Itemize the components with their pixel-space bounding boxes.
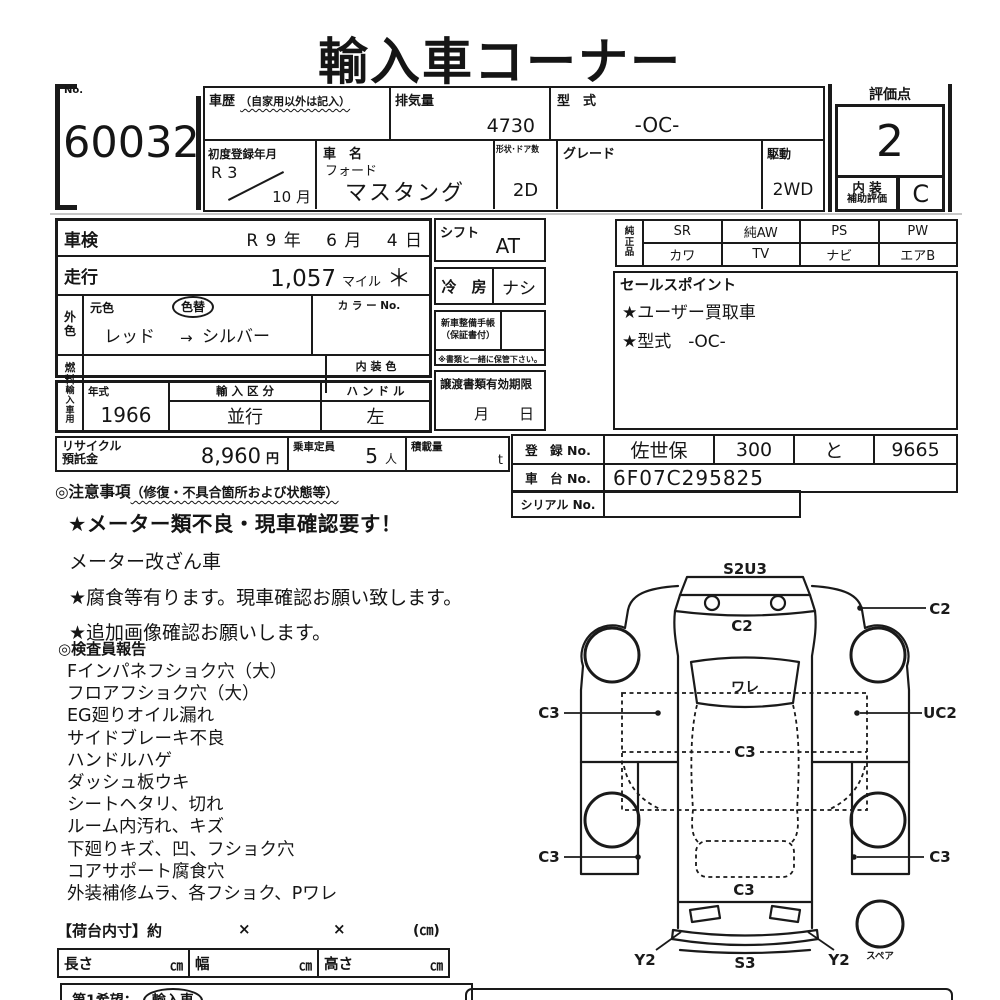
interior-rating-label-1: 内 装 bbox=[852, 182, 881, 195]
model-code-label: 型 式 bbox=[557, 94, 596, 109]
equipment-navi: ナビ bbox=[801, 244, 878, 265]
caution-line: ★腐食等有ります。現車確認お願い致します。 bbox=[55, 574, 515, 610]
diagram-label-c3-left-lower: C3 bbox=[538, 848, 559, 866]
registration-row: 登 録 No. 佐世保 300 と 9665 bbox=[511, 434, 958, 465]
inspector-heading: ◎検査員報告 bbox=[55, 638, 525, 659]
color-new-value: シルバー bbox=[202, 322, 270, 347]
diagram-label-s3: S3 bbox=[734, 954, 755, 972]
registration-no-label: 登 録 No. bbox=[513, 436, 603, 463]
shaken-value: R 9 年 6 月 4 日 bbox=[136, 226, 429, 251]
rating-score: 2 bbox=[835, 104, 945, 178]
equipment-sr: SR bbox=[644, 221, 721, 244]
import-class-label: 輸 入 区 分 bbox=[170, 383, 320, 402]
page-title: 輸入車コーナー bbox=[250, 22, 750, 94]
first-choice-value: 輸入車 bbox=[143, 988, 203, 1000]
shift-value: AT bbox=[496, 234, 520, 258]
cargo-height-label: 高さ bbox=[324, 953, 353, 974]
cargo-dims-table: 長さ ㎝ 幅 ㎝ 高さ ㎝ bbox=[57, 948, 450, 978]
cargo-cm-unit: (㎝) bbox=[413, 920, 440, 940]
mileage-asterisk-mark: ＊ bbox=[387, 258, 411, 293]
diagram-door-arc-right bbox=[828, 766, 865, 810]
equipment-pw: PW bbox=[880, 221, 957, 244]
cargo-height-cm: ㎝ bbox=[430, 955, 443, 974]
shift-label: シフト bbox=[440, 222, 479, 241]
inspector-item: フロアフショク穴（大） bbox=[67, 683, 525, 705]
diagram-pillar-left bbox=[691, 705, 698, 842]
cautions-section: ◎注意事項（修復・不具合箇所および状態等） ★メーター類不良・現車確認要す！ メ… bbox=[55, 480, 515, 645]
damage-diagram: S2U3 C2 ワレ C2 C3 UC2 C3 C3 C3 C3 Y2 S3 Y… bbox=[528, 548, 968, 978]
shift-box: シフト AT bbox=[434, 218, 546, 262]
displacement-value: 4730 bbox=[487, 115, 535, 137]
inspector-item: 下廻りキズ、凹、フショク穴 bbox=[67, 839, 525, 861]
sales-points-label: セールスポイント bbox=[615, 273, 956, 295]
capacity-label: 乗車定員 bbox=[293, 439, 335, 454]
cargo-x2: × bbox=[333, 920, 346, 938]
interior-rating-grade: C bbox=[897, 175, 946, 212]
diagram-leader-y2-left bbox=[656, 932, 681, 950]
inspector-item: ルーム内汚れ、キズ bbox=[67, 816, 525, 838]
equipment-ps: PS bbox=[801, 221, 878, 244]
diagram-headlight-left bbox=[705, 596, 719, 610]
model-year-label: 年式 bbox=[88, 384, 109, 399]
inspector-item: コアサポート腐食穴 bbox=[67, 861, 525, 883]
color-no-label: カ ラ ー No. bbox=[313, 298, 425, 313]
import-use-label: 輸入車用 bbox=[58, 383, 84, 430]
diagram-left-panel bbox=[581, 586, 678, 874]
recycle-row: リサイクル 預託金 8,960 円 乗車定員 5 人 積載量 t bbox=[55, 436, 510, 472]
inspector-item: シートヘタリ、切れ bbox=[67, 794, 525, 816]
diagram-wheel-front-left bbox=[585, 628, 639, 682]
ac-value: ナシ bbox=[494, 269, 544, 303]
diagram-body-right-edge bbox=[812, 611, 816, 928]
header-grid: 車歴 （自家用以外は記入） 排気量 4730 型 式 -OC- 初度登録年月 R… bbox=[203, 86, 825, 212]
recycle-label-2: 預託金 bbox=[62, 453, 121, 466]
exterior-color-label: 外色 bbox=[58, 296, 84, 354]
handle-value: 左 bbox=[322, 402, 429, 430]
sales-point-item: ★型式 -OC- bbox=[615, 323, 956, 352]
ac-label: 冷 房 bbox=[436, 269, 494, 303]
mileage-label: 走行 bbox=[58, 263, 136, 288]
diagram-spare-tire bbox=[857, 901, 903, 947]
model-year-value: 1966 bbox=[84, 403, 168, 427]
diagram-label-s2u3: S2U3 bbox=[723, 560, 767, 578]
interior-rating-label-2: 補助評価 bbox=[847, 195, 887, 205]
chassis-number: 6F07C295825 bbox=[603, 465, 956, 491]
diagram-label-c2-hood: C2 bbox=[731, 617, 752, 635]
diagram-label-y2-right: Y2 bbox=[827, 951, 849, 969]
diagram-wheel-front-right bbox=[851, 628, 905, 682]
load-unit: t bbox=[498, 453, 503, 468]
cargo-width-cm: ㎝ bbox=[299, 955, 312, 974]
first-reg-label: 初度登録年月 bbox=[208, 147, 277, 161]
diagram-label-c3-left-upper: C3 bbox=[538, 704, 559, 722]
inspector-item: 外装補修ムラ、各フショク、Pワレ bbox=[67, 883, 525, 905]
grade-label: グレード bbox=[563, 147, 615, 162]
doors-value: 2D bbox=[495, 180, 556, 201]
lot-number-block: No. 60032 bbox=[55, 84, 201, 210]
transfer-docs-value: 月 日 bbox=[474, 403, 534, 424]
inspector-item: サイドブレーキ不良 bbox=[67, 728, 525, 750]
diagram-headlight-right bbox=[771, 596, 785, 610]
registration-area: 佐世保 bbox=[603, 436, 713, 463]
service-book-label-2: （保証書付） bbox=[441, 331, 495, 342]
service-book-note: ※書類と一緒に保管下さい。 bbox=[436, 349, 544, 367]
diagram-wheel-rear-left bbox=[585, 793, 639, 847]
serial-no-label: シリアル No. bbox=[513, 492, 603, 516]
equipment-grid: 純正品 SR カワ 純AW TV PS ナビ PW エアB bbox=[615, 219, 958, 267]
diagram-taillight-left bbox=[690, 906, 720, 922]
diagram-label-y2-left: Y2 bbox=[633, 951, 655, 969]
mileage-unit: マイル bbox=[342, 271, 381, 290]
cargo-x1: × bbox=[238, 920, 251, 938]
vehicle-info-block: 車検 R 9 年 6 月 4 日 走行 1,057 マイル ＊ 外色 元色 色替… bbox=[55, 218, 432, 378]
sales-point-item: ★ユーザー買取車 bbox=[615, 295, 956, 323]
history-label: 車歴 bbox=[209, 94, 235, 109]
capacity-unit: 人 bbox=[385, 450, 397, 467]
displacement-label: 排気量 bbox=[395, 94, 434, 109]
chassis-row: 車 台 No. 6F07C295825 bbox=[511, 463, 958, 493]
service-book-box: 新車整備手帳 （保証書付） ※書類と一緒に保管下さい。 bbox=[434, 310, 546, 366]
bottom-right-box: ◆ bbox=[465, 988, 953, 1000]
diagram-front-band bbox=[675, 595, 815, 616]
serial-row: シリアル No. bbox=[511, 490, 801, 518]
cargo-dims-line: 【荷台内寸】約 × × (㎝) bbox=[55, 920, 455, 942]
transfer-docs-label: 譲渡書類有効期限 bbox=[440, 376, 532, 392]
registration-class: 300 bbox=[713, 436, 793, 463]
diagram-wheel-rear-right bbox=[851, 793, 905, 847]
first-choice-label: 第1希望： bbox=[72, 993, 138, 1000]
rating-block: 評価点 2 内 装 補助評価 C bbox=[828, 84, 952, 212]
header-separator bbox=[50, 213, 962, 215]
recycle-amount: 8,960 bbox=[201, 444, 261, 468]
shaken-label: 車検 bbox=[58, 226, 136, 251]
lot-number: 60032 bbox=[63, 118, 193, 168]
diagram-label-ware: ワレ bbox=[731, 680, 759, 696]
first-reg-year: R 3 bbox=[211, 163, 237, 182]
ac-box: 冷 房 ナシ bbox=[434, 267, 546, 305]
car-name: マスタング bbox=[317, 175, 493, 207]
diagram-label-c3-rear: C3 bbox=[733, 881, 754, 899]
chassis-no-label: 車 台 No. bbox=[513, 465, 603, 491]
import-info-block: 輸入車用 年式 1966 輸 入 区 分 並行 ハ ン ド ル 左 bbox=[55, 380, 432, 433]
cargo-length-label: 長さ bbox=[64, 953, 93, 974]
diagram-label-spare: スペア bbox=[866, 951, 894, 962]
first-choice-box: 第1希望： 輸入車 bbox=[60, 983, 473, 1000]
handle-label: ハ ン ド ル bbox=[322, 383, 429, 402]
rating-label: 評価点 bbox=[828, 84, 952, 104]
recycle-unit: 円 bbox=[266, 448, 279, 467]
import-class-value: 並行 bbox=[170, 402, 320, 430]
cargo-width-label: 幅 bbox=[195, 953, 210, 974]
inspector-item: EG廻りオイル漏れ bbox=[67, 705, 525, 727]
lot-bracket-bottom-stub bbox=[55, 205, 77, 210]
diagram-front-bumper bbox=[680, 577, 810, 595]
lot-no-label: No. bbox=[64, 85, 83, 96]
color-change-arrow: → bbox=[180, 329, 193, 347]
color-original-value: レッド bbox=[104, 322, 155, 347]
diagram-body-left-edge bbox=[674, 611, 678, 928]
diagram-label-uc2: UC2 bbox=[923, 704, 957, 722]
history-note: （自家用以外は記入） bbox=[240, 95, 350, 108]
service-book-label-1: 新車整備手帳 bbox=[441, 319, 495, 330]
diagram-label-c3-right-lower: C3 bbox=[929, 848, 950, 866]
diagram-rear-bumper-lip bbox=[680, 950, 810, 953]
model-code-value: -OC- bbox=[551, 113, 763, 137]
cargo-length-cm: ㎝ bbox=[170, 955, 183, 974]
doors-label: 形状･ドア数 bbox=[496, 143, 550, 155]
diagram-right-panel bbox=[812, 586, 909, 874]
load-label: 積載量 bbox=[411, 439, 443, 454]
cautions-heading: ◎注意事項 bbox=[55, 483, 131, 501]
drive-label: 駆動 bbox=[767, 147, 791, 161]
diagram-label-c3-center: C3 bbox=[734, 743, 755, 761]
diagram-taillight-right bbox=[770, 906, 800, 922]
cautions-heading-note: （修復・不具合箇所および状態等） bbox=[131, 486, 339, 501]
caution-alert: ★メーター類不良・現車確認要す！ bbox=[55, 502, 515, 537]
genuine-parts-label: 純正品 bbox=[617, 221, 644, 265]
inspector-item: ダッシュ板ウキ bbox=[67, 772, 525, 794]
cargo-label: 【荷台内寸】約 bbox=[57, 920, 162, 941]
equipment-kawa: カワ bbox=[644, 244, 721, 265]
diagram-rear-bumper bbox=[672, 930, 818, 945]
inspector-report-section: ◎検査員報告 Fインパネフショク穴（大） フロアフショク穴（大） EG廻りオイル… bbox=[55, 638, 525, 905]
diagram-label-c2-right: C2 bbox=[929, 600, 950, 618]
color-change-label: 色替 bbox=[172, 296, 214, 318]
diagram-door-arc-left bbox=[624, 766, 662, 810]
inspector-item: ハンドルハゲ bbox=[67, 750, 525, 772]
registration-number: 9665 bbox=[873, 436, 956, 463]
diagram-pillar-right bbox=[792, 705, 799, 842]
auction-sheet: 輸入車コーナー No. 60032 車歴 （自家用以外は記入） 排気量 4730… bbox=[0, 0, 1000, 1000]
equipment-airbag: エアB bbox=[880, 244, 957, 265]
capacity-value: 5 bbox=[365, 444, 378, 468]
inspector-item: Fインパネフショク穴（大） bbox=[67, 661, 525, 683]
equipment-aw: 純AW bbox=[723, 221, 800, 244]
original-color-label: 元色 bbox=[90, 299, 114, 316]
sales-points-box: セールスポイント ★ユーザー買取車 ★型式 -OC- bbox=[613, 271, 958, 430]
registration-kana: と bbox=[793, 436, 873, 463]
caution-line: メーター改ざん車 bbox=[55, 537, 515, 574]
serial-number-empty bbox=[603, 492, 799, 516]
mileage-value: 1,057 bbox=[270, 266, 336, 292]
diagram-rear-window bbox=[696, 841, 794, 877]
first-reg-month: 10 月 bbox=[272, 186, 311, 207]
transfer-docs-box: 譲渡書類有効期限 月 日 bbox=[434, 370, 546, 431]
drive-value: 2WD bbox=[763, 180, 823, 200]
interior-color-label: 内 装 色 bbox=[327, 358, 425, 374]
lot-bracket-left bbox=[55, 84, 60, 210]
equipment-tv: TV bbox=[723, 244, 800, 265]
